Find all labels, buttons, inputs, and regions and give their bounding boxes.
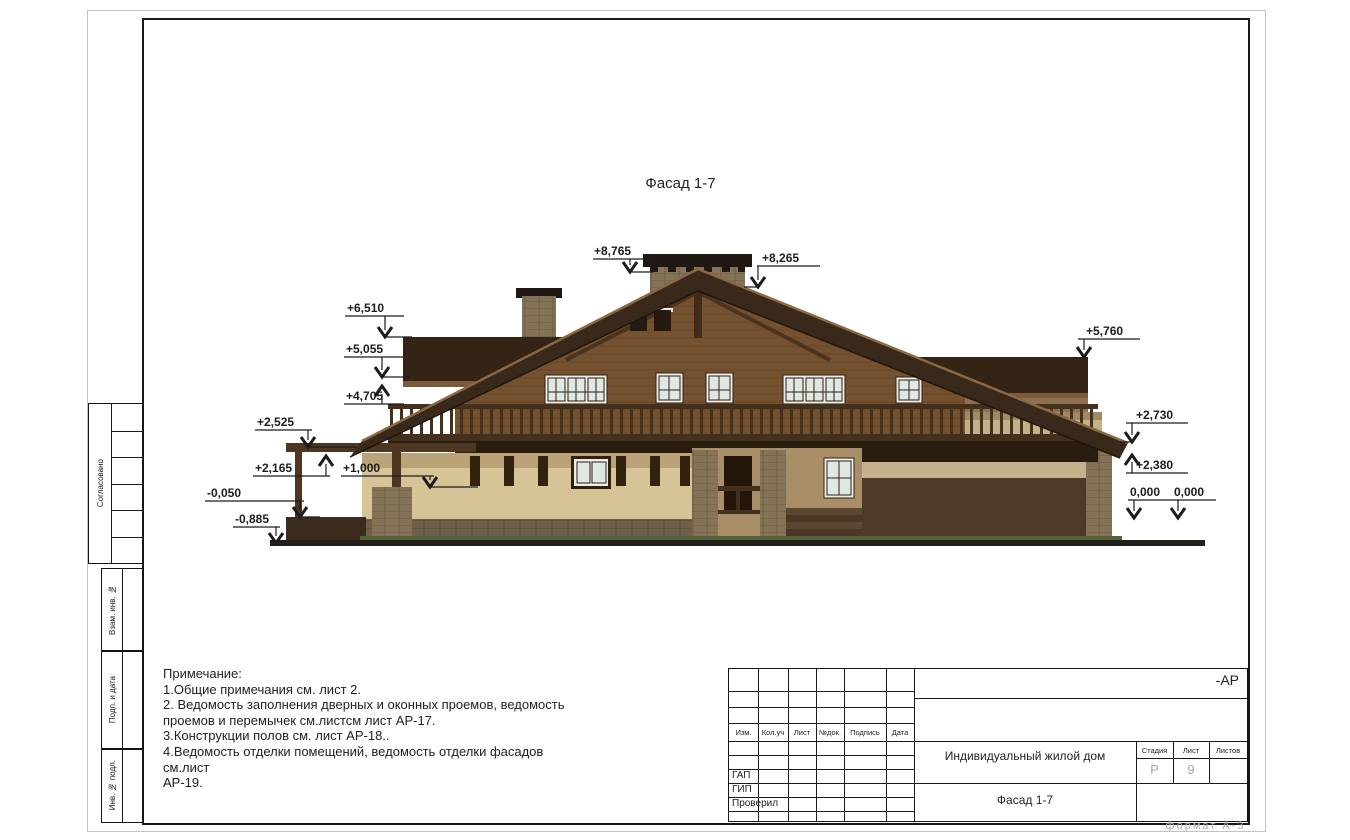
title-block: Изм. Кол.уч Лист №док. Подпись Дата ГАП … bbox=[728, 668, 1248, 822]
sign-date-block: Подп. и дата bbox=[101, 650, 144, 750]
role-gip: ГИП bbox=[732, 784, 752, 795]
inv-original-label: Инв. № подл. bbox=[108, 760, 117, 810]
sheet-title: Фасад 1-7 bbox=[914, 793, 1136, 807]
format-label: формат А-3 bbox=[1143, 820, 1268, 832]
stage-value: Р bbox=[1136, 762, 1173, 777]
stage-label: Стадия bbox=[1136, 746, 1173, 755]
approved-label: Согласовано bbox=[96, 459, 105, 507]
project-name: Индивидуальный жилой дом bbox=[914, 749, 1136, 763]
col-data: Дата bbox=[886, 728, 914, 737]
col-ndoc: №док. bbox=[816, 728, 844, 737]
inv-original-block: Инв. № подл. bbox=[101, 748, 144, 823]
notes-line: Примечание: bbox=[163, 666, 593, 682]
sheets-label: Листов bbox=[1209, 746, 1247, 755]
notes-line: проемов и перемычек см.листсм лист АР-17… bbox=[163, 713, 593, 729]
notes-line: 3.Конструкции полов см. лист АР-18.. bbox=[163, 728, 593, 744]
sign-date-label: Подп. и дата bbox=[108, 676, 117, 723]
replace-inv-label: Взам. инв. № bbox=[108, 585, 117, 635]
sheet-label: Лист bbox=[1173, 746, 1209, 755]
doc-code: -АР bbox=[1216, 672, 1239, 688]
role-proveril: Проверил bbox=[732, 798, 778, 809]
role-gap: ГАП bbox=[732, 770, 751, 781]
approved-block: Согласовано bbox=[88, 403, 144, 564]
notes: Примечание: 1.Общие примечания см. лист … bbox=[163, 666, 593, 791]
page-title: Фасад 1-7 bbox=[598, 175, 763, 192]
notes-line: 1.Общие примечания см. лист 2. bbox=[163, 682, 593, 698]
notes-line: 2. Ведомость заполнения дверных и оконны… bbox=[163, 697, 593, 713]
replace-inv-block: Взам. инв. № bbox=[101, 568, 144, 652]
notes-line: 4.Ведомость отделки помещений, ведомость… bbox=[163, 744, 593, 775]
col-koluch: Кол.уч bbox=[758, 728, 788, 737]
col-list: Лист bbox=[788, 728, 816, 737]
sheet-value: 9 bbox=[1173, 762, 1209, 777]
col-izm: Изм. bbox=[729, 728, 758, 737]
notes-line: АР-19. bbox=[163, 775, 593, 791]
col-podpis: Подпись bbox=[844, 728, 886, 737]
